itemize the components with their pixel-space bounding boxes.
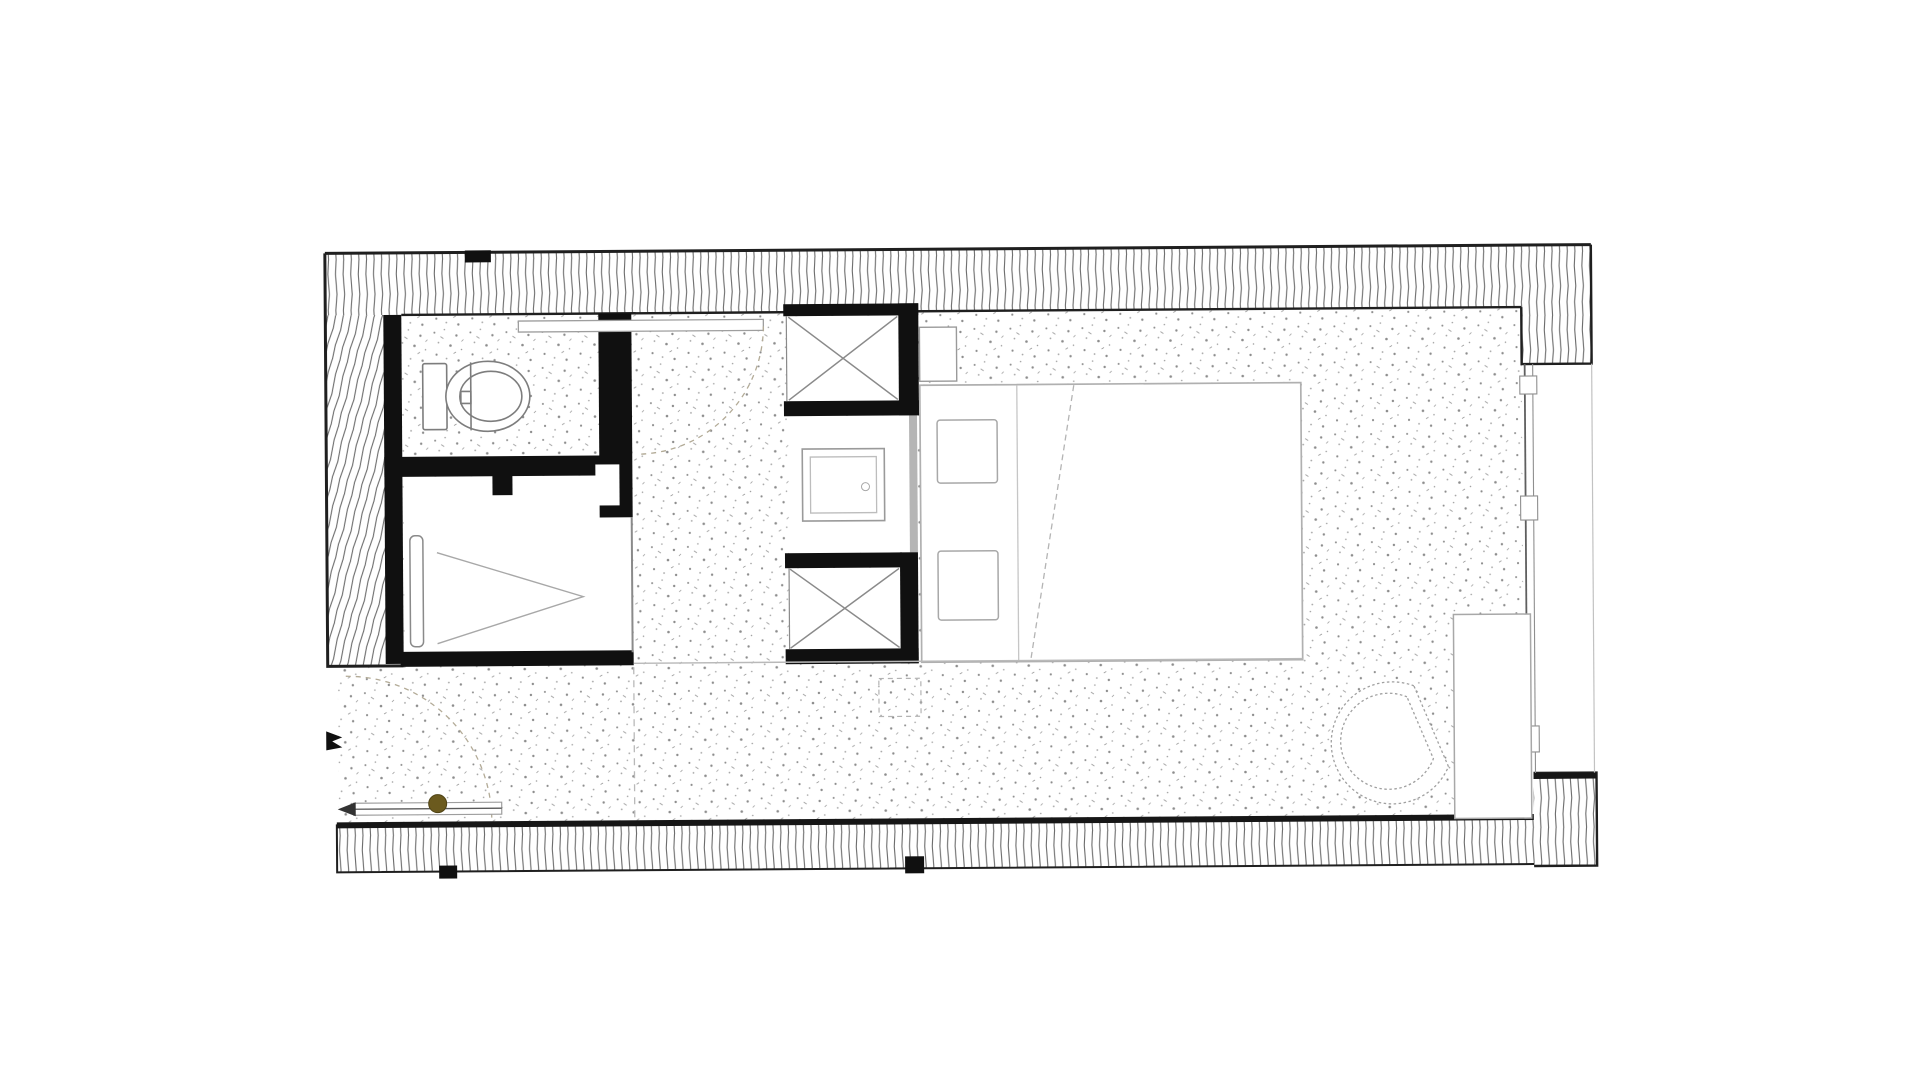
- mullion-2: [1521, 496, 1538, 520]
- luggage-table-outer: [802, 449, 885, 522]
- lower-shaft-right-wall: [900, 552, 919, 663]
- upper-shaft-right-wall: [898, 303, 919, 415]
- wc-shower-divider: [384, 455, 614, 477]
- corner-block-inner-face: [1534, 773, 1597, 779]
- divider-stub: [492, 475, 512, 495]
- top-wall-band: [325, 245, 1521, 315]
- bedside-box: [919, 327, 956, 381]
- niche-back-band: [909, 415, 918, 552]
- left-wall-band: [325, 315, 385, 666]
- lower-shaft-left-edge: [789, 568, 790, 649]
- olive-marker-dot: [429, 795, 447, 813]
- shower-glass-screen: [410, 536, 424, 647]
- corridor-wall-line: [632, 517, 633, 652]
- floor-plan: [0, 0, 1920, 1080]
- luggage-table: [802, 449, 885, 522]
- top-right-return: [1521, 245, 1592, 364]
- pillow-left: [937, 420, 997, 483]
- black-tick-bottom-center: [905, 856, 924, 873]
- toilet-cistern: [423, 364, 447, 430]
- desk-console: [1453, 614, 1531, 819]
- black-tick-bottom-left: [439, 866, 457, 879]
- shower-bottom-wall: [401, 650, 634, 667]
- upper-shaft-bottom-wall: [784, 400, 919, 416]
- black-tick-top-wall: [465, 250, 491, 262]
- wc-door-pocket: [595, 464, 619, 505]
- wc-left-lining: [383, 315, 403, 664]
- pillow-right: [938, 551, 998, 620]
- mullion-1: [1520, 376, 1537, 394]
- toilet: [423, 361, 530, 432]
- bottom-right-corner-block: [1534, 773, 1598, 866]
- door-leaf-on-top-wall: [518, 319, 763, 332]
- lower-shaft-top-wall: [785, 552, 902, 568]
- upper-shaft-top-wall: [783, 303, 918, 316]
- upper-shaft-left-edge: [786, 316, 787, 401]
- floor-plan-svg: [0, 0, 1920, 1080]
